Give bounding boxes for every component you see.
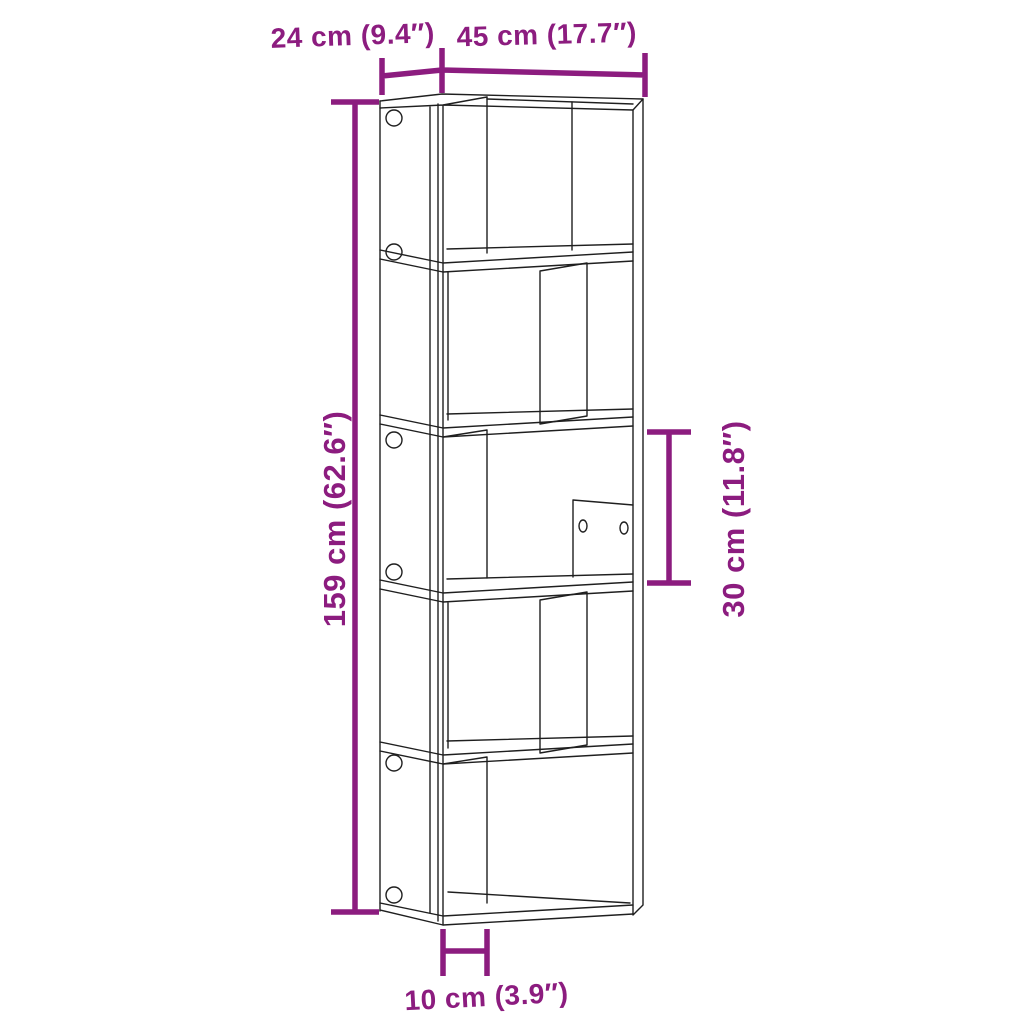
dim-foot-lines (443, 929, 487, 976)
back-panel-holes (579, 520, 628, 534)
dim-depth-label: 24 cm (9.4″) (270, 17, 435, 54)
dim-height-label: 159 cm (62.6″) (317, 411, 352, 628)
shelf-4 (380, 736, 633, 764)
bookcase-line-drawing (380, 94, 643, 931)
product-dimension-diagram: 24 cm (9.4″) 45 cm (17.7″) 159 cm (62.6″… (0, 0, 1024, 1024)
tier4-divider (448, 592, 587, 753)
tier3-divider (443, 430, 633, 578)
dim-top-lines (382, 48, 645, 97)
shelf-3 (380, 574, 633, 602)
dim-compartment-label: 30 cm (11.8″) (716, 420, 751, 617)
bookcase-bottom-panel (380, 892, 633, 925)
bookcase-top-panel (380, 94, 643, 110)
shelf-2 (380, 409, 633, 437)
cam-lock-holes (386, 110, 402, 903)
dim-width-label: 45 cm (17.7″) (456, 17, 637, 53)
tier5-divider (443, 757, 487, 903)
dim-compartment-lines (647, 432, 691, 583)
bookcase-feet (380, 905, 630, 931)
dimension-annotations: 24 cm (9.4″) 45 cm (17.7″) 159 cm (62.6″… (270, 17, 751, 1017)
tier2-divider (448, 263, 587, 424)
dim-foot-label: 10 cm (3.9″) (404, 977, 570, 1017)
tier1-divider (487, 97, 572, 253)
shelf-1 (380, 244, 633, 272)
dimension-diagram-page: 24 cm (9.4″) 45 cm (17.7″) 159 cm (62.6″… (0, 0, 1024, 1024)
bookcase-outer-frame (380, 99, 643, 925)
